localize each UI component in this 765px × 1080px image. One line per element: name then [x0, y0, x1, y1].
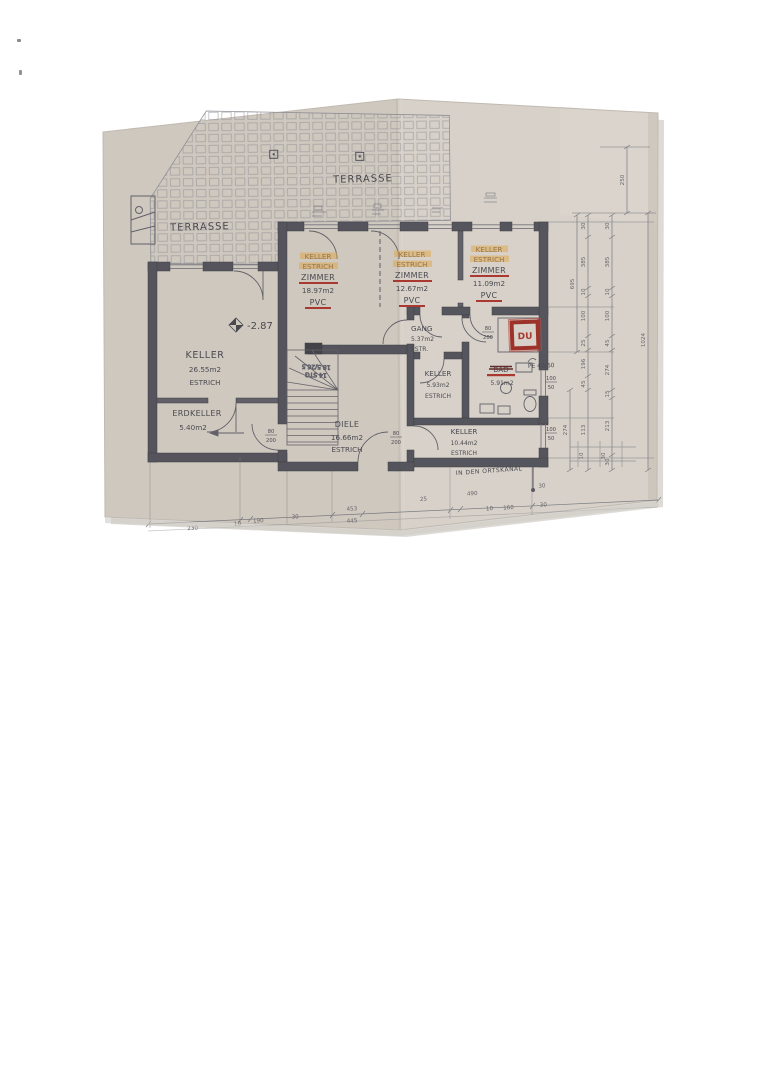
wall [452, 222, 472, 231]
dim-bottom2-0: 445 [347, 518, 358, 525]
dim-a-4: 25 [581, 339, 587, 347]
wall [414, 352, 420, 359]
marker-strike [470, 256, 509, 263]
scan-speck [17, 39, 21, 42]
dim-bottom-4: 453 [346, 506, 357, 513]
terrace-label-right: TERRASSE [332, 173, 393, 186]
dim-corner-1: 30 [601, 452, 607, 460]
marker-strike [471, 246, 508, 253]
marker-strike [300, 253, 337, 260]
diele-name: DIELE [335, 420, 360, 429]
zimmer2-area: 12.67m2 [396, 284, 428, 293]
dim-a-2: 10 [581, 288, 587, 296]
dim-b-5: 274 [605, 364, 611, 375]
window-size-bottom: 50 [548, 436, 555, 442]
dim-a-0: 30 [581, 222, 587, 230]
door-size-bottom: 200 [266, 438, 276, 444]
wall [308, 345, 407, 354]
dim-a-3: 100 [581, 310, 587, 321]
keller-mittel-area: 10.44m2 [451, 440, 478, 447]
paper-edge-shade [648, 113, 658, 500]
wall [148, 262, 157, 462]
door-size-top: 80 [268, 429, 275, 435]
wall [407, 450, 414, 462]
wall [414, 458, 548, 467]
keller-big-name: KELLER [185, 350, 224, 361]
bad-area: 5.91m2 [490, 380, 513, 387]
red-underline [393, 280, 432, 282]
wall [500, 222, 512, 231]
window-size-top: 100 [546, 427, 556, 433]
wall-thin [236, 398, 278, 403]
wall [388, 462, 414, 471]
wall-thin [157, 398, 208, 403]
door-size-bottom: 200 [391, 440, 401, 446]
marker-strike [393, 261, 432, 268]
erdkeller-name: ERDKELLER [172, 409, 221, 418]
dim-bottom2-1: 10 [486, 506, 494, 512]
door-size-top: 80 [485, 326, 492, 332]
canal-arrow-dot [531, 488, 535, 492]
red-underline [487, 374, 515, 376]
du-stamp: DU [508, 318, 541, 351]
dim-bottom-7: 30 [538, 483, 546, 489]
zimmer1-floor: PVC [310, 298, 327, 307]
gang-area: 5.37m2 [411, 336, 434, 343]
wall [148, 453, 287, 462]
dim-b-0: 30 [605, 222, 611, 230]
zimmer1-new-name: ZIMMER [301, 273, 335, 282]
dim-bottom-3: 30 [292, 514, 300, 520]
scan-speck [19, 70, 22, 75]
keller-klein-floor: ESTRICH [425, 393, 451, 400]
dim-b-2: 10 [605, 288, 611, 296]
red-underline [476, 300, 502, 302]
keller-mittel-name: KELLER [451, 427, 478, 436]
scan-artifacts-top [17, 39, 22, 75]
wall [258, 262, 278, 271]
dim-bottom-6: 490 [467, 491, 478, 498]
pipe-label: PE 40/60 [528, 362, 555, 370]
dim-b-4: 45 [605, 339, 611, 347]
wall [462, 315, 469, 318]
dim-a-6: 45 [581, 380, 587, 388]
red-underline [399, 305, 425, 307]
window-size-bottom: 50 [548, 385, 555, 391]
erdkeller-area: 5.40m2 [179, 423, 207, 432]
wall [407, 344, 414, 426]
wall [278, 462, 358, 471]
wall [462, 342, 469, 418]
stair-note-line1: 14 STG [305, 371, 327, 379]
wall [414, 418, 548, 425]
wall [444, 352, 462, 359]
zimmer2-new-name: ZIMMER [395, 271, 429, 280]
keller-klein-area: 5.93m2 [426, 382, 449, 389]
wall [400, 222, 428, 231]
stair-note-line2: 18.5/26.5 [301, 362, 330, 370]
wall-thin [458, 231, 463, 280]
floorplan-scan-svg: 14 STG 18.5/26.5 KELLER ESTRICH ZIMMER [0, 0, 765, 1080]
dim-bottom-2: 190 [253, 518, 264, 525]
dim-a-1: 385 [581, 256, 587, 267]
marker-strike [394, 251, 431, 258]
wall-thin [458, 303, 463, 307]
red-underline [305, 307, 331, 309]
dim-total: 1024 [641, 332, 647, 347]
diele-floor: ESTRICH [331, 445, 362, 454]
zimmer3-floor: PVC [481, 291, 498, 300]
dim-corner-0: 10 [579, 452, 585, 460]
dim-b-7: 213 [605, 420, 611, 431]
dim-a-7: 113 [581, 424, 587, 435]
dim-sub: 274 [563, 424, 569, 435]
wall [278, 450, 287, 462]
elevation-value: -2.87 [247, 321, 273, 332]
terrace-label-left: TERRASSE [169, 221, 230, 234]
gang-name: GANG [411, 324, 432, 333]
door-size-top: 80 [393, 431, 400, 437]
wall [442, 307, 470, 315]
du-stamp-text: DU [518, 332, 533, 343]
zimmer2-floor: PVC [404, 296, 421, 305]
diele-area: 16.66m2 [331, 433, 363, 442]
window-size-top: 100 [546, 376, 556, 382]
keller-mittel-floor: ESTRICH [451, 450, 477, 457]
dim-top: 250 [620, 174, 626, 185]
stair-note: 14 STG 18.5/26.5 [301, 362, 330, 378]
bad-label: BAD 5.91m2 [487, 365, 515, 387]
keller-big-floor: ESTRICH [189, 378, 220, 387]
dim-mid: 695 [570, 278, 576, 289]
dim-b-3: 100 [605, 310, 611, 321]
gang-floor: ESTR. [411, 346, 428, 353]
keller-klein-name: KELLER [425, 369, 452, 378]
zimmer1-area: 18.97m2 [302, 286, 334, 295]
keller-big-area: 26.55m2 [189, 365, 221, 374]
dim-b-6: 15 [605, 390, 611, 398]
wall [539, 396, 548, 424]
dim-a-5: 196 [581, 358, 587, 369]
dim-bottom-5: 25 [420, 497, 428, 503]
red-underline [299, 282, 338, 284]
dim-bottom2-2: 160 [503, 505, 514, 512]
marker-strike [299, 263, 338, 270]
paper-highlight [560, 107, 658, 225]
door-size-bottom: 200 [483, 335, 493, 341]
zimmer3-new-name: ZIMMER [472, 266, 506, 275]
wall [407, 307, 414, 320]
scanned-floorplan-page: 14 STG 18.5/26.5 KELLER ESTRICH ZIMMER [0, 0, 765, 1080]
red-underline [470, 275, 509, 277]
dim-bottom2-3: 30 [540, 502, 548, 508]
wall [203, 262, 233, 271]
wall [338, 222, 368, 231]
dim-b-1: 385 [605, 256, 611, 267]
wall [278, 222, 287, 424]
zimmer3-area: 11.09m2 [473, 279, 505, 288]
